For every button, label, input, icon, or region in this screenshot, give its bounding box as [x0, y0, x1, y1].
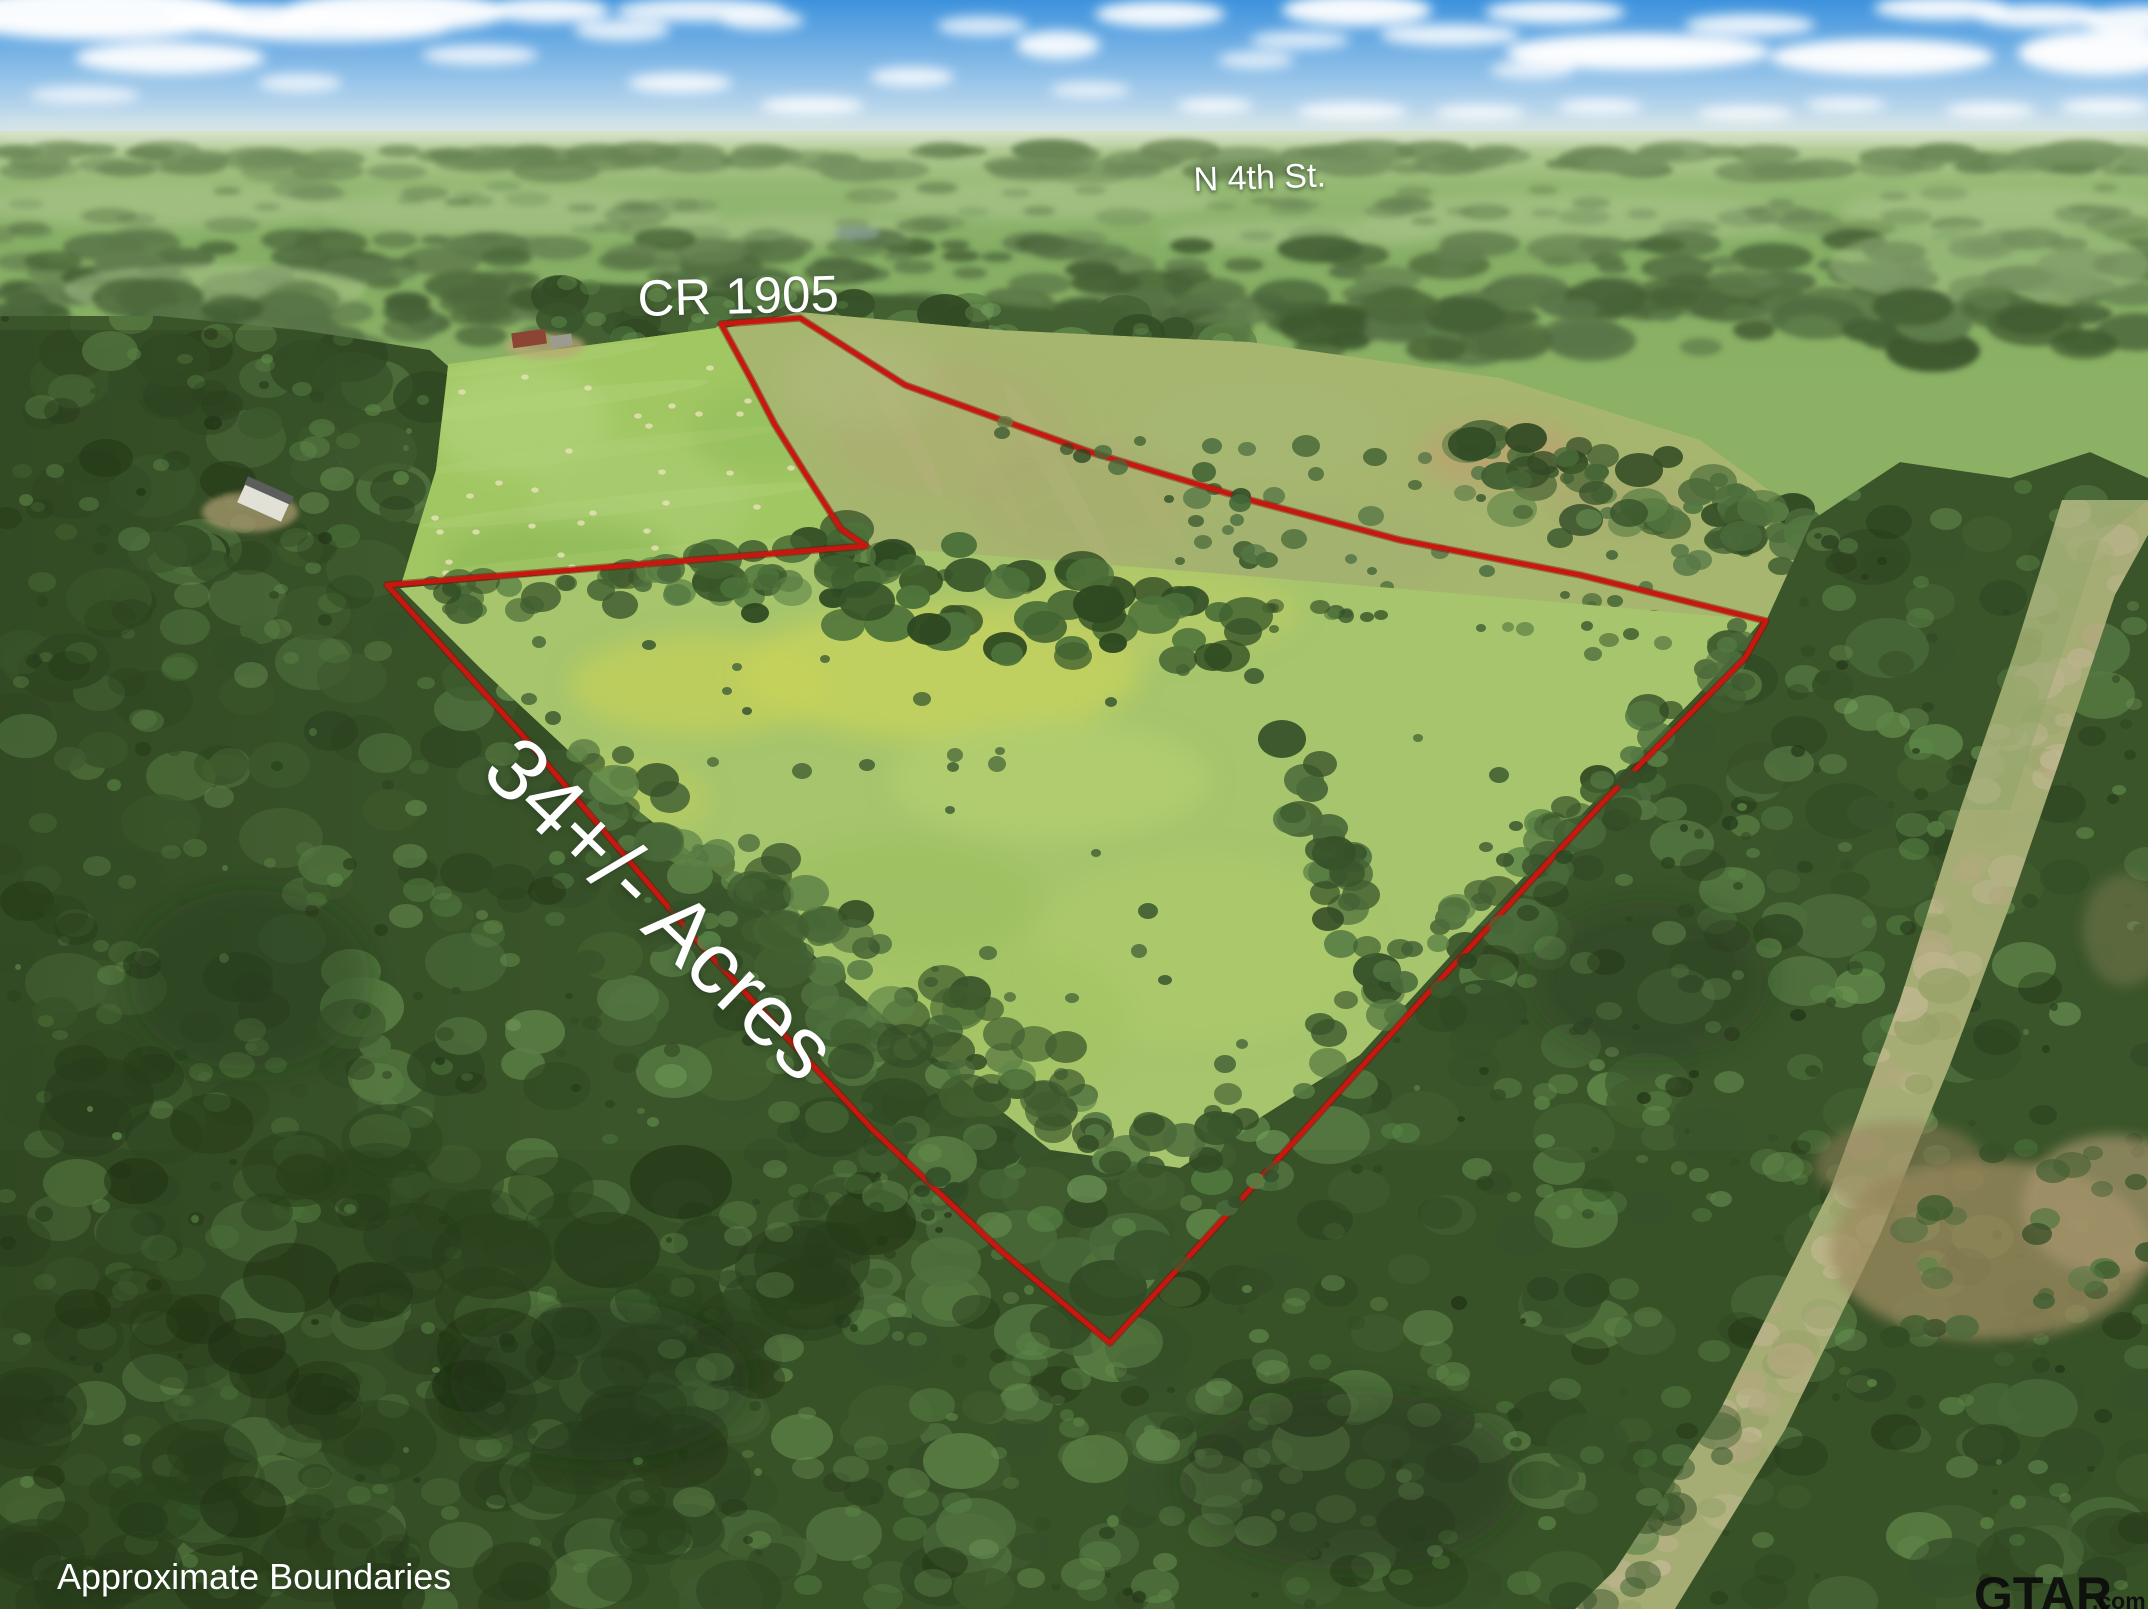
svg-text:CR 1905: CR 1905 [637, 265, 840, 327]
svg-text:Approximate Boundaries: Approximate Boundaries [57, 1556, 451, 1597]
svg-text:N 4th St.: N 4th St. [1193, 156, 1327, 199]
svg-text:.com: .com [2092, 1588, 2146, 1609]
